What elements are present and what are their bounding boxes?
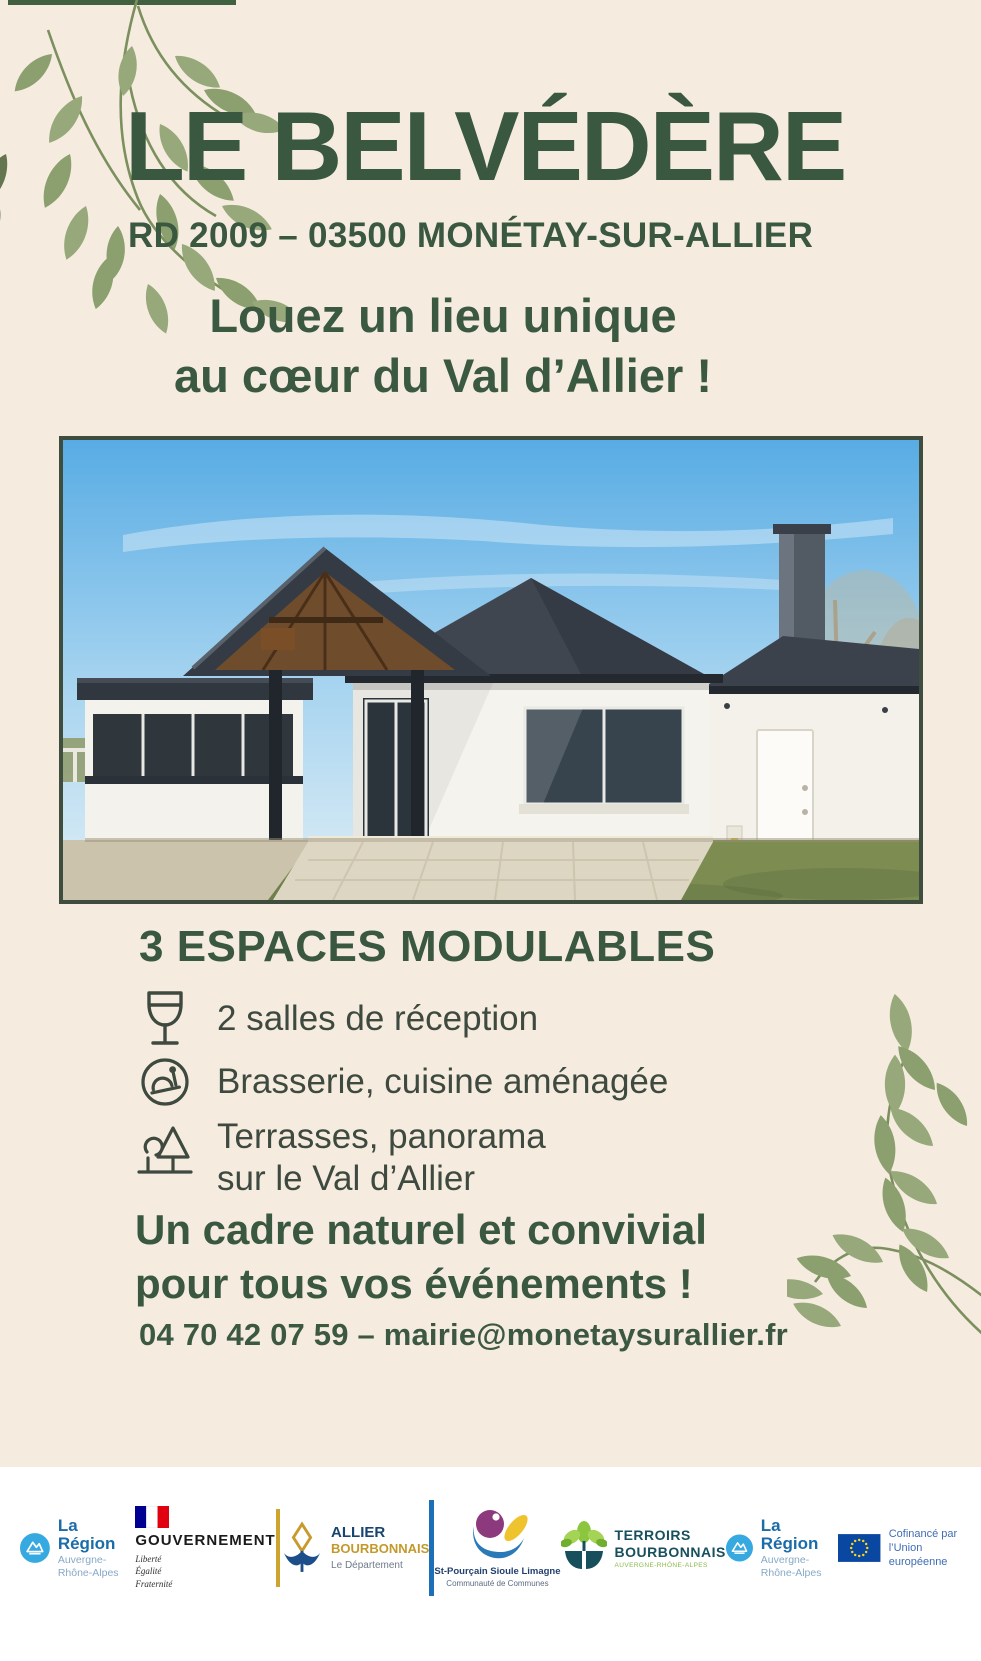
contact-line: 04 70 42 07 59 – mairie@monetaysurallier… [139,1317,788,1353]
feature-reception-rooms: 2 salles de réception [133,988,538,1050]
closing-line2: pour tous vos événements ! [135,1260,693,1307]
logo-allier-bourbonnais: ALLIER BOURBONNAIS Le Département [280,1520,429,1576]
logo-st-pourcain: St-Pourçain Sioule Limagne Communauté de… [434,1508,560,1588]
terroirs-line1: TERROIRS [615,1527,726,1544]
feature-brasserie: Brasserie, cuisine aménagée [133,1054,668,1110]
wine-glass-icon [133,988,197,1050]
eu-flag-icon [838,1529,880,1567]
allier-line2: BOURBONNAIS [331,1541,429,1557]
logo-region-aura: La Région Auvergne-Rhône-Alpes [20,1517,135,1580]
feature-terraces: Terrasses, panorama sur le Val d’Allier [133,1116,546,1200]
venue-title: LE BELVÉDÈRE [125,95,845,198]
st-pourcain-line1: St-Pourçain Sioule Limagne [434,1566,560,1577]
tagline: Louez un lieu unique au cœur du Val d’Al… [40,286,846,406]
partner-logos-footer: La Région Auvergne-Rhône-Alpes GOUVERNEM… [0,1467,981,1661]
section-heading: 3 ESPACES MODULABLES [139,922,715,972]
gouvernement-title: GOUVERNEMENT [135,1532,275,1549]
terrace [273,836,713,900]
sliding-window [519,708,689,814]
eu-line2: l’Union européenne [889,1541,961,1570]
closing-statement: Un cadre naturel et convivial pour tous … [135,1203,707,1311]
gouvernement-motto: Liberté Égalité Fraternité [135,1553,172,1591]
feature-line2: sur le Val d’Allier [217,1159,475,1198]
region-subtitle: Auvergne-Rhône-Alpes [58,1554,136,1579]
logo-eu-cofinance: Cofinancé par l’Union européenne [838,1527,961,1570]
poster: LE BELVÉDÈRE RD 2009 – 03500 MONÉTAY-SUR… [0,0,981,1467]
chimney [773,524,831,654]
region-aura-icon [20,1527,50,1569]
st-pourcain-icon [460,1508,534,1564]
fleur-de-lis-icon [280,1520,324,1576]
allier-line3: Le Département [331,1560,429,1571]
venue-address: RD 2009 – 03500 MONÉTAY-SUR-ALLIER [128,216,813,256]
feature-text: 2 salles de réception [217,998,538,1040]
poster-page: LE BELVÉDÈRE RD 2009 – 03500 MONÉTAY-SUR… [0,0,981,1661]
region-title: La Région [58,1517,136,1554]
terroirs-sprout-icon [561,1521,607,1575]
terroirs-line2: BOURBONNAIS [615,1544,726,1561]
logo-region-aura-2: La Région Auvergne-Rhône-Alpes [726,1517,838,1580]
venue-photo [59,436,923,904]
allier-line1: ALLIER [331,1525,429,1541]
terroirs-tagline: AUVERGNE-RHÔNE-ALPES [615,1562,726,1569]
st-pourcain-line2: Communauté de Communes [446,1579,548,1588]
leaf-branch-icon [787,986,981,1344]
logo-row: La Région Auvergne-Rhône-Alpes GOUVERNEM… [20,1489,961,1607]
region2-subtitle: Auvergne-Rhône-Alpes [761,1554,838,1579]
feature-text: Terrasses, panorama sur le Val d’Allier [217,1116,546,1200]
closing-line1: Un cadre naturel et convivial [135,1206,707,1253]
tagline-line2: au cœur du Val d’Allier ! [174,349,712,402]
french-flag-icon [135,1506,169,1528]
tagline-line1: Louez un lieu unique [209,289,676,342]
venue-photo-scene [63,440,919,900]
building-base-shadow [85,838,919,842]
logo-gouvernement: GOUVERNEMENT Liberté Égalité Fraternité [135,1506,275,1591]
eu-line1: Cofinancé par [889,1527,961,1541]
feature-line1: Terrasses, panorama [217,1117,546,1156]
logo-terroirs-bourbonnais: TERROIRS BOURBONNAIS AUVERGNE-RHÔNE-ALPE… [561,1521,726,1575]
food-cloche-icon [133,1054,197,1110]
park-tree-icon [133,1122,197,1180]
region-aura-icon [726,1529,753,1567]
feature-text: Brasserie, cuisine aménagée [217,1061,668,1103]
region2-title: La Région [761,1517,838,1554]
